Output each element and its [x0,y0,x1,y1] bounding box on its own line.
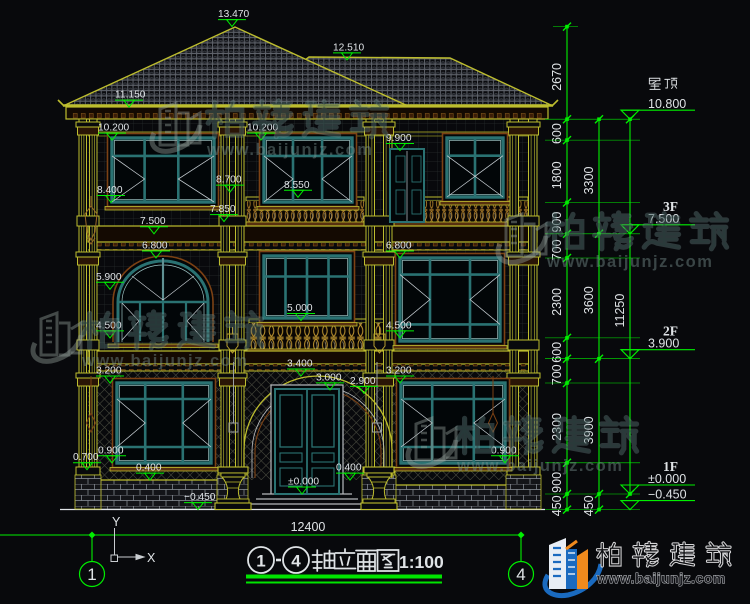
svg-text:12400: 12400 [291,520,326,534]
svg-text:www.baijunjz.com: www.baijunjz.com [81,352,248,370]
svg-text:3.400: 3.400 [287,359,313,370]
svg-text:600: 600 [550,123,564,144]
svg-text:3600: 3600 [582,286,596,314]
svg-text:www.baijunjz.com: www.baijunjz.com [596,570,726,586]
svg-text:600: 600 [550,342,564,363]
svg-text:12.510: 12.510 [333,42,364,53]
svg-text:10.800: 10.800 [648,97,686,111]
svg-text:11250: 11250 [613,294,627,328]
svg-text:7.500: 7.500 [140,216,166,227]
svg-text:Y: Y [112,515,121,529]
svg-text:1: 1 [87,565,96,584]
svg-text:www.baijunjz.com: www.baijunjz.com [456,457,623,475]
svg-text:900: 900 [550,472,564,493]
svg-text:1800: 1800 [550,161,564,189]
svg-text:7.850: 7.850 [210,204,236,215]
svg-text:6.800: 6.800 [142,241,168,252]
svg-text:8.550: 8.550 [284,180,310,191]
svg-text:0.900: 0.900 [98,445,124,456]
svg-text:−0.450: −0.450 [184,492,216,503]
svg-text:0.400: 0.400 [136,463,162,474]
svg-text:4: 4 [516,565,525,584]
svg-text:9.900: 9.900 [386,133,412,144]
svg-text:4: 4 [291,552,301,571]
svg-text:8.700: 8.700 [216,175,242,186]
svg-text:X: X [147,551,156,565]
svg-text:13.470: 13.470 [218,9,249,20]
svg-text:3.200: 3.200 [386,366,412,377]
svg-text:1: 1 [256,552,265,571]
svg-text:www.baijunjz.com: www.baijunjz.com [546,253,713,271]
svg-text:10.200: 10.200 [98,123,129,134]
svg-text:700: 700 [550,364,564,385]
svg-text:3.900: 3.900 [648,337,679,351]
svg-text:5.900: 5.900 [96,272,122,283]
svg-text:8.400: 8.400 [97,185,123,196]
svg-text:±0.000: ±0.000 [648,472,686,486]
svg-text:450: 450 [550,495,564,516]
svg-text:0.400: 0.400 [336,463,362,474]
svg-text:www.baijunjz.com: www.baijunjz.com [206,141,373,159]
svg-text:4.500: 4.500 [386,320,412,331]
svg-text:±0.000: ±0.000 [288,477,319,488]
svg-text:3300: 3300 [582,167,596,195]
svg-text:450: 450 [582,495,596,516]
svg-text:1:100: 1:100 [399,552,444,572]
svg-text:3.000: 3.000 [316,372,342,383]
svg-text:11.150: 11.150 [115,90,146,101]
svg-text:2670: 2670 [550,63,564,91]
svg-text:−0.450: −0.450 [648,488,687,502]
svg-text:2.900: 2.900 [350,376,376,387]
svg-text:2300: 2300 [550,288,564,316]
svg-text:5.000: 5.000 [287,303,313,314]
svg-text:6.800: 6.800 [386,241,412,252]
svg-text:0.700: 0.700 [73,452,99,463]
